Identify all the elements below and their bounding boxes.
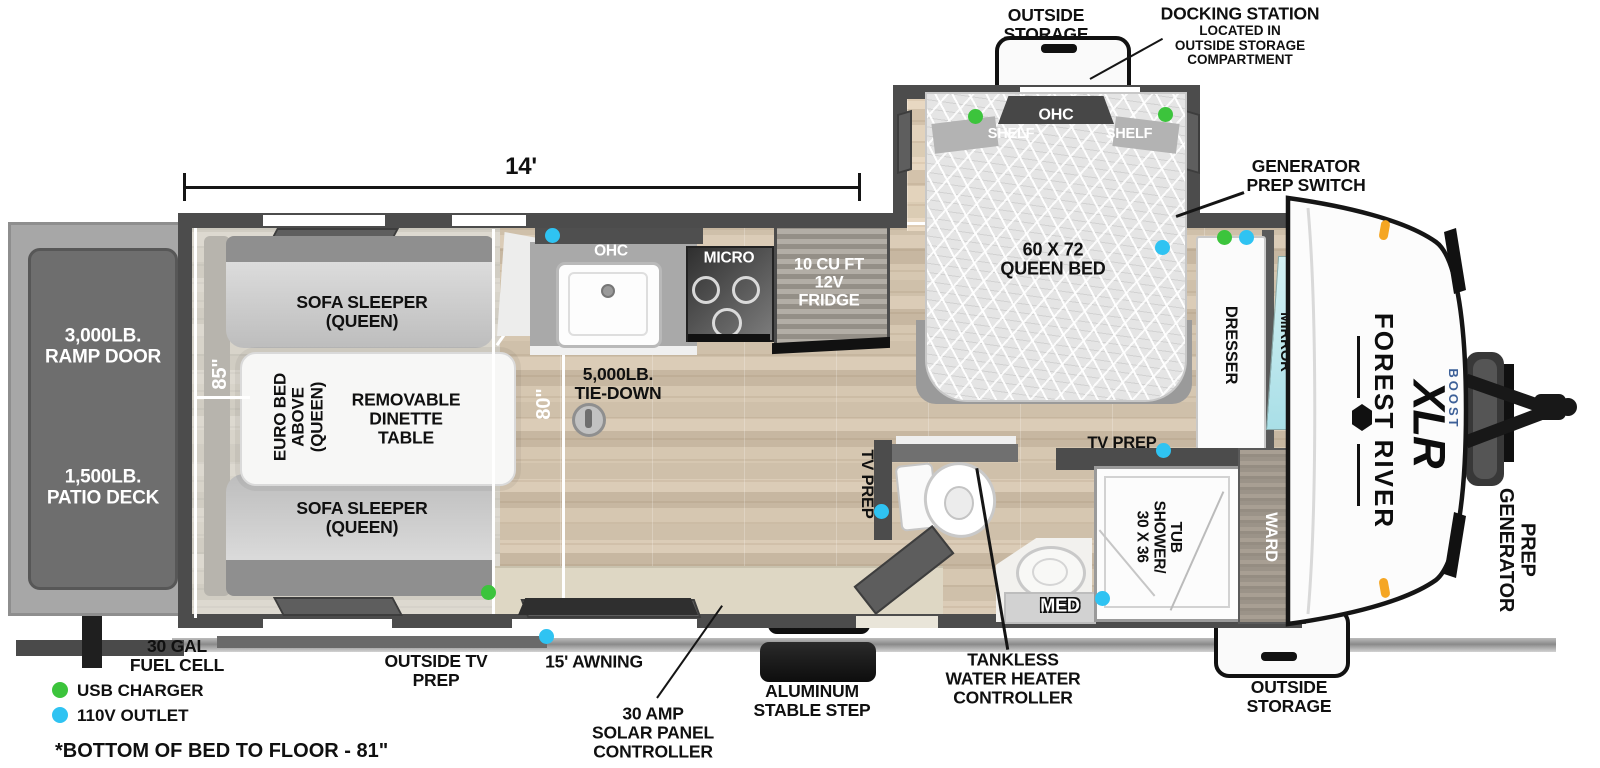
footnote: *BOTTOM OF BED TO FLOOR - 81" — [55, 740, 388, 763]
fridge-label: 10 CU FT 12V FRIDGE — [794, 256, 864, 309]
entry-door-threshold — [856, 616, 938, 628]
tie-down-label: 5,000LB. TIE-DOWN — [575, 365, 662, 403]
bath-tv-prep-label: TV PREP — [857, 449, 875, 518]
tankless-label: TANKLESS WATER HEATER CONTROLLER — [945, 651, 1080, 708]
awning-roll — [518, 598, 698, 615]
outside-tv-prep-label: OUTSIDE TV PREP — [384, 652, 487, 690]
window-gap — [452, 215, 526, 226]
forest-river-swoosh — [1357, 444, 1360, 506]
110v-outlet-dot — [1155, 240, 1170, 255]
brand-make: FOREST RIVER — [1370, 313, 1398, 529]
legend-110v-label: 110V OUTLET — [77, 706, 188, 726]
window-gap — [263, 215, 385, 226]
solar-controller-label: 30 AMP SOLAR PANEL CONTROLLER — [592, 705, 714, 762]
legend-110v-dot — [52, 707, 68, 723]
110v-outlet-dot — [1095, 591, 1110, 606]
usb-charger-dot — [1158, 107, 1173, 122]
sofa-bottom-label: SOFA SLEEPER (QUEEN) — [296, 499, 427, 537]
usb-charger-dot — [1217, 230, 1232, 245]
forest-river-swoosh — [1357, 336, 1360, 398]
burner-icon — [692, 276, 720, 304]
generator-prep-label: GENERATOR PREP — [1494, 488, 1537, 612]
bath-wall-left — [874, 440, 892, 540]
toilet-bowl-inner — [944, 486, 974, 520]
tie-down-anchor-slot — [585, 409, 592, 428]
110v-outlet-dot — [874, 504, 889, 519]
dim-14-line — [183, 186, 860, 189]
dresser-label: DRESSER — [1221, 306, 1239, 384]
step-label: ALUMINUM STABLE STEP — [753, 682, 870, 720]
usb-charger-dot — [481, 585, 496, 600]
shower-label: 30 X 36 SHOWER/ TUB — [1133, 501, 1183, 574]
ramp-door-panel — [28, 248, 178, 590]
queen-bed-label: 60 X 72 QUEEN BED — [1000, 241, 1105, 280]
docking-station-title: DOCKING STATION — [1161, 5, 1320, 24]
brand-submodel: BOOST — [1446, 368, 1460, 429]
sofa-bottom-back — [226, 560, 494, 596]
kitchen-sink-basin — [568, 272, 648, 336]
garage-slide-line — [492, 229, 495, 614]
110v-outlet-dot — [539, 629, 554, 644]
legend-usb-dot — [52, 682, 68, 698]
shelf-left-label: SHELF — [988, 127, 1035, 143]
faucet-icon — [601, 284, 615, 298]
generator-prep-switch-label: GENERATOR PREP SWITCH — [1246, 157, 1365, 195]
110v-outlet-dot — [545, 228, 560, 243]
awning-rail-front — [512, 619, 697, 628]
outside-storage-latch-top — [1041, 44, 1077, 53]
burner-icon — [732, 276, 760, 304]
legend-usb-label: USB CHARGER — [77, 681, 204, 701]
dim-14-label: 14' — [505, 154, 537, 180]
euro-bed-label: EURO BED ABOVE (QUEEN) — [271, 373, 326, 461]
awning-rail-rear — [263, 619, 392, 628]
floorplan-diagram: 3,000LB. RAMP DOOR 1,500LB. PATIO DECK S… — [0, 0, 1600, 768]
kitchen-ohc-label: OHC — [594, 244, 628, 261]
wall-rear — [178, 213, 192, 628]
docking-station-note: LOCATED IN OUTSIDE STORAGE COMPARTMENT — [1175, 24, 1305, 68]
tongue-jack — [1504, 364, 1514, 462]
outside-storage-top-label: OUTSIDE STORAGE — [1004, 6, 1089, 44]
shelf-right-label: SHELF — [1106, 127, 1153, 143]
stove-front-bar — [688, 334, 770, 342]
dim-80-line — [562, 330, 565, 614]
dim-14-tick — [183, 173, 186, 201]
med-label: MED — [1040, 596, 1079, 615]
fuel-cell-label: 30 GAL FUEL CELL — [130, 637, 224, 675]
awning-label: 15' AWNING — [545, 653, 643, 672]
micro-label: MICRO — [704, 251, 755, 268]
window — [273, 597, 403, 616]
bedroom-ohc-label: OHC — [1039, 106, 1074, 123]
entry-step-lower — [760, 642, 876, 682]
window — [897, 110, 912, 174]
outside-storage-bottom-label: OUTSIDE STORAGE — [1247, 678, 1332, 716]
dim-85-label: 85" — [210, 358, 232, 389]
ramp-door-label: 3,000LB. RAMP DOOR — [45, 326, 161, 367]
dim-85-tick — [194, 396, 250, 399]
bath-sink-basin — [1032, 558, 1068, 586]
kitchen-ohc-cabinet — [535, 228, 703, 244]
110v-outlet-dot — [1156, 443, 1171, 458]
dim-80-label: 80" — [534, 388, 556, 419]
sofa-top-label: SOFA SLEEPER (QUEEN) — [296, 293, 427, 331]
usb-charger-dot — [968, 109, 983, 124]
fuel-cell-tank — [217, 636, 547, 648]
patio-deck-label: 1,500LB. PATIO DECK — [47, 467, 159, 508]
bath-counter — [892, 444, 1018, 462]
dim-14-tick — [858, 173, 861, 201]
110v-outlet-dot — [1239, 230, 1254, 245]
window — [1185, 110, 1200, 174]
dinette-label: REMOVABLE DINETTE TABLE — [352, 391, 461, 448]
dim-85-extension — [194, 228, 197, 618]
